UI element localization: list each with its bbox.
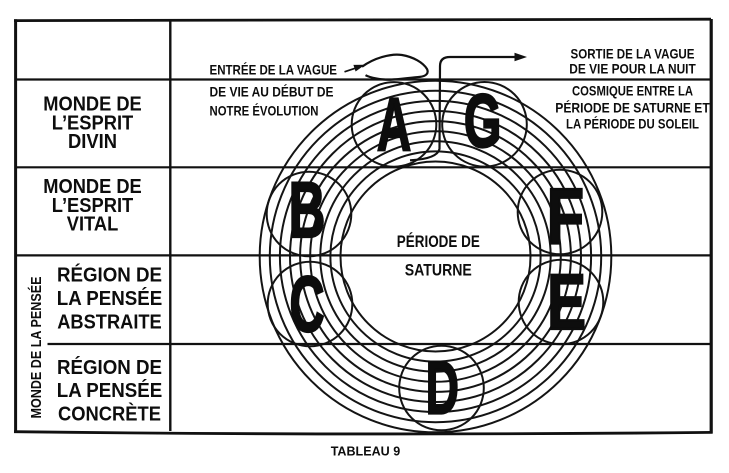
svg-text:SORTIE DE LA VAGUE: SORTIE DE LA VAGUE	[571, 46, 695, 62]
svg-text:TABLEAU 9: TABLEAU 9	[331, 443, 401, 458]
svg-text:COSMIQUE ENTRE LA: COSMIQUE ENTRE LA	[572, 82, 693, 98]
svg-text:G: G	[464, 80, 502, 163]
svg-text:CONCRÈTE: CONCRÈTE	[58, 402, 161, 425]
svg-text:LA PÉRIODE DU SOLEIL: LA PÉRIODE DU SOLEIL	[566, 116, 699, 132]
svg-text:DE VIE POUR LA NUIT: DE VIE POUR LA NUIT	[569, 60, 696, 76]
svg-text:PÉRIODE DE: PÉRIODE DE	[397, 232, 480, 251]
svg-text:LA PENSÉE: LA PENSÉE	[57, 287, 163, 310]
svg-text:ENTRÉE DE LA VAGUE: ENTRÉE DE LA VAGUE	[210, 62, 338, 78]
svg-text:RÉGION DE: RÉGION DE	[57, 356, 162, 379]
svg-text:DE VIE AU DÉBUT DE: DE VIE AU DÉBUT DE	[210, 83, 334, 99]
svg-text:E: E	[547, 257, 586, 346]
svg-text:A: A	[377, 83, 411, 167]
svg-text:RÉGION DE: RÉGION DE	[57, 264, 162, 287]
svg-text:ABSTRAITE: ABSTRAITE	[57, 312, 162, 334]
svg-text:SATURNE: SATURNE	[405, 262, 472, 280]
svg-text:F: F	[547, 172, 584, 260]
svg-text:LA PENSÉE: LA PENSÉE	[57, 379, 163, 402]
svg-text:B: B	[289, 167, 326, 255]
svg-text:PÉRIODE DE SATURNE ET: PÉRIODE DE SATURNE ET	[555, 100, 710, 116]
svg-text:DIVIN: DIVIN	[68, 131, 117, 153]
svg-text:MONDE DE LA PENSÉE: MONDE DE LA PENSÉE	[28, 277, 45, 419]
svg-text:NOTRE ÉVOLUTION: NOTRE ÉVOLUTION	[210, 103, 319, 119]
svg-text:C: C	[289, 260, 324, 348]
svg-text:D: D	[426, 347, 459, 430]
svg-text:VITAL: VITAL	[67, 214, 119, 236]
